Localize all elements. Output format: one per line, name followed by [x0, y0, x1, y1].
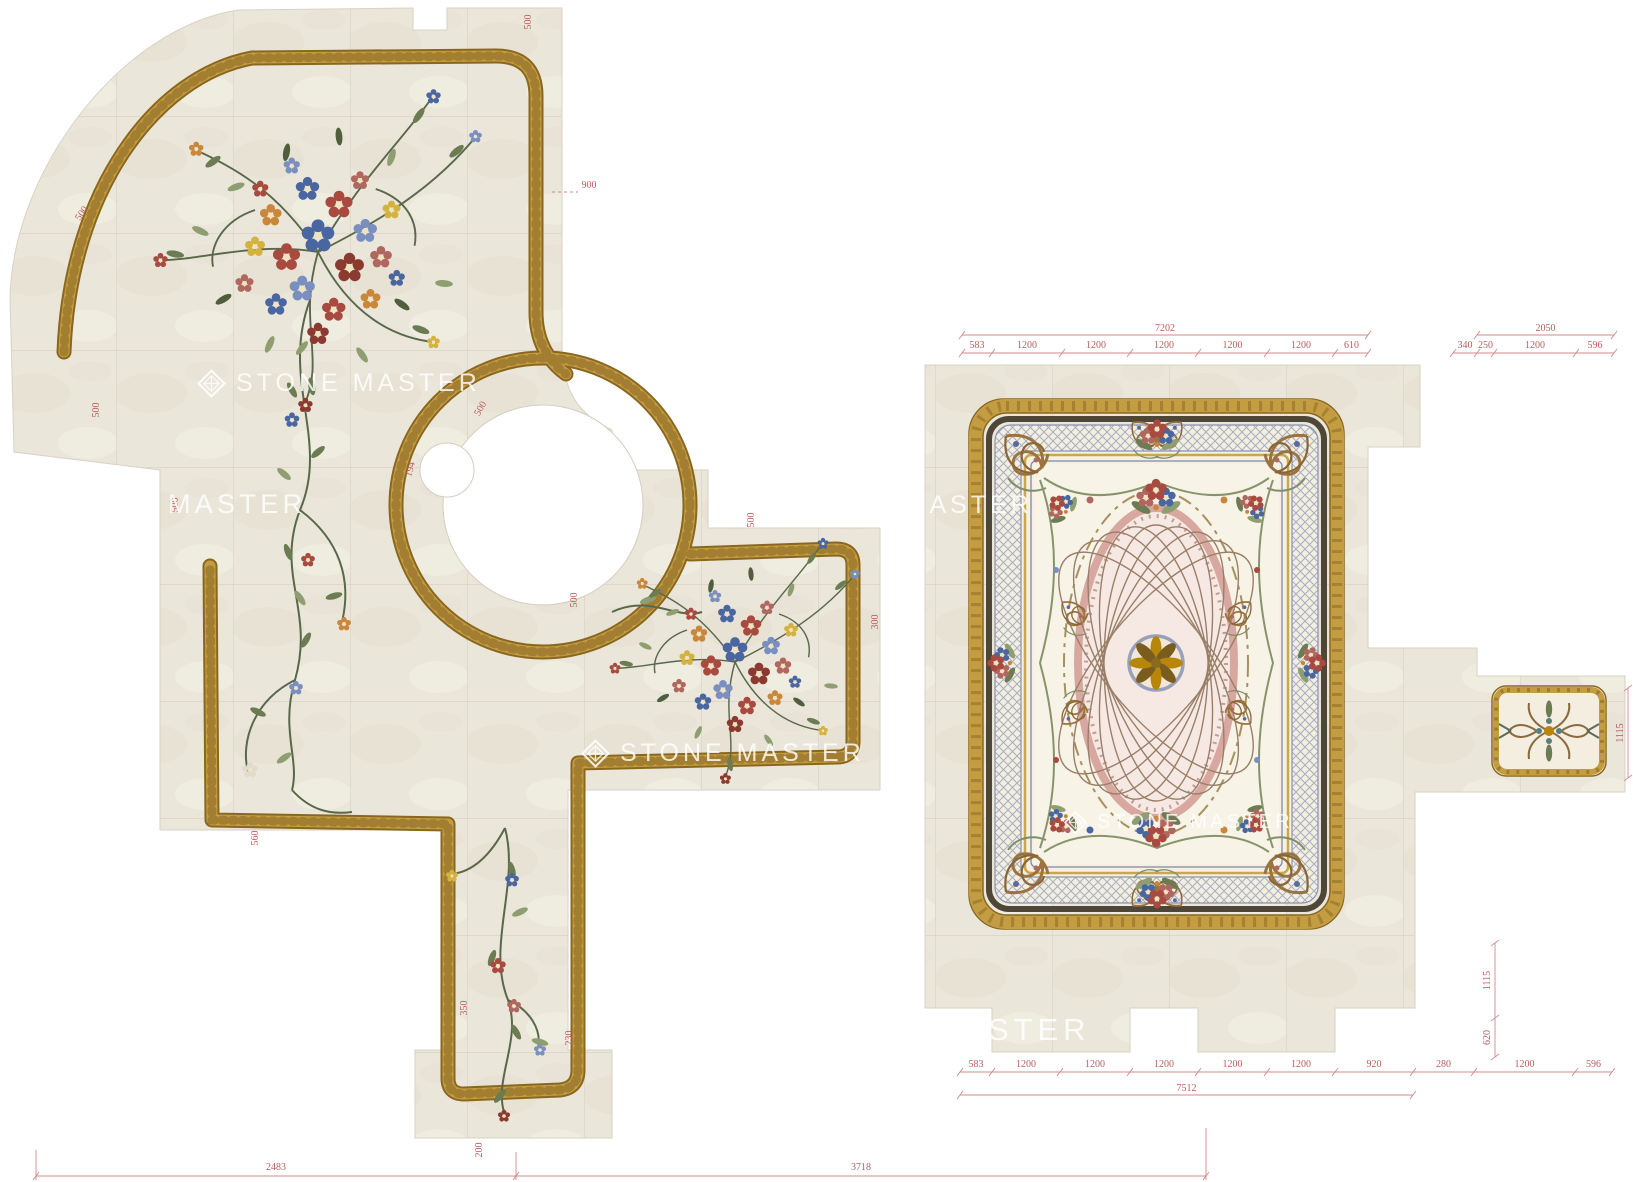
floor-plan-canvas: 5831200120012001200120061034025012005967… [0, 0, 1633, 1182]
overall-dimension-label: 7202 [1155, 323, 1175, 334]
dimension-label: 583 [969, 1059, 984, 1070]
edge-dimension-label: 560 [250, 831, 261, 846]
overall-dimension-label: 2050 [1536, 323, 1556, 334]
edge-dimension-label: 500 [569, 593, 580, 608]
overall-dimension-label: 7512 [1177, 1083, 1197, 1094]
dimension-label: 596 [1586, 1059, 1601, 1070]
dimension-label: 583 [970, 340, 985, 351]
dimension-label: 1200 [1086, 340, 1106, 351]
edge-dimension-label: 300 [870, 615, 881, 630]
dimension-label: 1200 [1017, 340, 1037, 351]
dimension-label: 1200 [1223, 1059, 1243, 1070]
dimension-label: 1200 [1154, 1059, 1174, 1070]
dimension-label: 1200 [1016, 1059, 1036, 1070]
edge-dimension-label: 230 [564, 1031, 575, 1046]
edge-dimension-label: 350 [459, 1001, 470, 1016]
edge-dimension-label: 500 [170, 498, 181, 513]
dimension-label: 3718 [851, 1162, 871, 1173]
dimension-label: 596 [1588, 340, 1603, 351]
edge-dimension-label: 200 [474, 1143, 485, 1158]
edge-dimension-label: 500 [523, 15, 534, 30]
dimension-label: 1200 [1525, 340, 1545, 351]
dimension-label: 1200 [1154, 340, 1174, 351]
dimension-label: 1200 [1291, 340, 1311, 351]
dimension-label: 1200 [1291, 1059, 1311, 1070]
column-cutout-large [443, 405, 643, 605]
dimension-label: 250 [1478, 340, 1493, 351]
dimension-label: 1115 [1482, 971, 1493, 990]
dimension-label: 280 [1436, 1059, 1451, 1070]
edge-dimension-label: 900 [582, 180, 597, 191]
dimension-label: 920 [1367, 1059, 1382, 1070]
dimension-label: 620 [1482, 1030, 1493, 1045]
dimension-label: 340 [1458, 340, 1473, 351]
dimension-label: 1200 [1085, 1059, 1105, 1070]
dimension-label: 1115 [1615, 723, 1626, 742]
small-side-panel [1492, 686, 1606, 776]
edge-dimension-label: 500 [746, 513, 757, 528]
dimension-label: 610 [1344, 340, 1359, 351]
column-cutout-small [420, 443, 474, 497]
dimension-label: 2483 [266, 1162, 286, 1173]
edge-dimension-label: 500 [91, 403, 102, 418]
stone-floor-plan-drawing: 5831200120012001200120061034025012005967… [0, 0, 1633, 1182]
dimension-label: 1200 [1223, 340, 1243, 351]
dimension-label: 1200 [1515, 1059, 1535, 1070]
